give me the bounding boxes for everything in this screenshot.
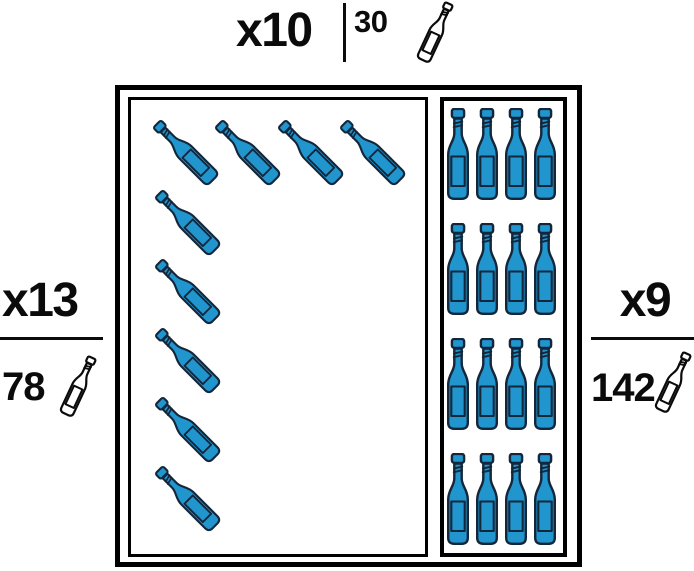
upright-wine-bottle <box>445 223 471 315</box>
upright-bottle-slot <box>445 338 471 435</box>
upright-wine-bottle <box>474 338 500 430</box>
upright-bottle-slot <box>474 453 500 550</box>
upright-bottle-slot <box>503 223 529 320</box>
wine-bottle-icon <box>648 348 694 421</box>
upright-wine-bottle <box>503 453 529 545</box>
right-multiplier: x9 <box>604 272 686 330</box>
upright-bottle-slot <box>532 108 558 205</box>
upright-bottle-slot <box>474 223 500 320</box>
rack-left-section <box>128 97 428 557</box>
upright-wine-bottle <box>503 338 529 430</box>
tilted-bottle-slot <box>330 110 414 199</box>
upright-wine-bottle <box>503 223 529 315</box>
wine-bottle-icon <box>410 0 462 71</box>
upright-bottle-slot <box>532 223 558 320</box>
wine-rack-diagram: x10 30 x13 78 x9 142 <box>0 0 694 571</box>
upright-wine-bottle <box>532 453 558 545</box>
upright-wine-bottle <box>503 108 529 200</box>
upright-bottle-slot <box>503 453 529 550</box>
upright-wine-bottle <box>445 338 471 430</box>
upright-bottle-slot <box>532 338 558 435</box>
upright-bottle-slot <box>445 453 471 550</box>
left-multiplier: x13 <box>2 272 78 330</box>
wine-bottle-icon <box>53 352 105 420</box>
upright-wine-bottle <box>445 108 471 200</box>
upright-bottle-slot <box>503 338 529 435</box>
wine-bottle-icon <box>410 0 462 66</box>
tilted-bottle-slot <box>145 456 229 545</box>
upright-bottle-slot <box>474 108 500 205</box>
top-multiplier: x10 <box>236 2 312 60</box>
upright-wine-bottle <box>532 223 558 315</box>
upright-wine-bottle <box>445 453 471 545</box>
wine-bottle-icon <box>53 352 105 425</box>
tilted-wine-bottle <box>330 110 414 194</box>
right-count: 142 <box>591 364 655 412</box>
upright-bottle-slot <box>532 453 558 550</box>
upright-wine-bottle <box>474 223 500 315</box>
rack-right-section <box>440 97 567 557</box>
upright-wine-bottle <box>532 108 558 200</box>
left-count: 78 <box>2 363 45 411</box>
upright-bottle-slot <box>474 338 500 435</box>
upright-wine-bottle <box>474 108 500 200</box>
upright-bottle-slot <box>445 108 471 205</box>
upright-bottle-slot <box>445 223 471 320</box>
upright-wine-bottle <box>532 338 558 430</box>
wine-bottle-icon <box>648 348 694 416</box>
upright-wine-bottle <box>474 453 500 545</box>
upright-bottle-slot <box>503 108 529 205</box>
top-divider <box>343 3 346 62</box>
tilted-wine-bottle <box>145 456 229 540</box>
left-divider <box>0 337 103 340</box>
right-divider <box>591 337 694 340</box>
top-count: 30 <box>354 0 387 44</box>
